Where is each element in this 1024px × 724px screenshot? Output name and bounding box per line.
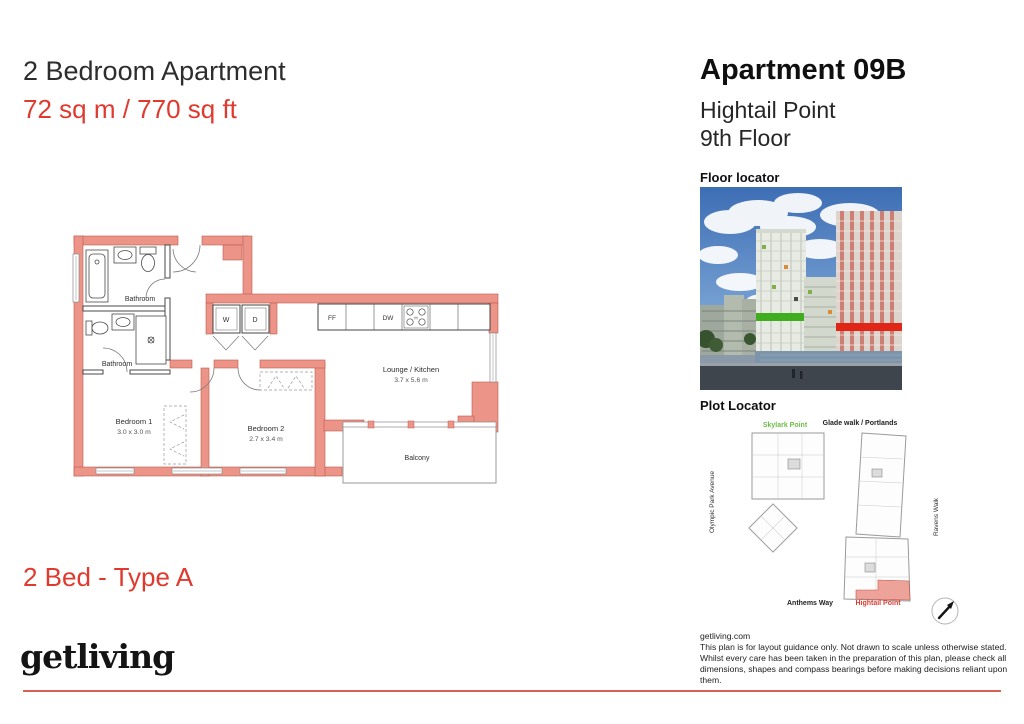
bathroom2-label: Bathroom: [102, 361, 133, 368]
bedroom1-dims: 3.0 x 3.0 m: [117, 429, 151, 436]
page-title: 2 Bedroom Apartment: [23, 56, 286, 87]
disclaimer-text: This plan is for layout guidance only. N…: [700, 642, 1014, 686]
website-url: getliving.com: [700, 631, 1014, 642]
wardrobes: [164, 372, 312, 464]
bedroom1-label: Bedroom 1: [116, 417, 153, 426]
bedroom2-dims: 2.7 x 3.4 m: [249, 436, 283, 443]
floor-locator-photo: [700, 187, 902, 390]
lounge-label: Lounge / Kitchen: [383, 365, 439, 374]
anthems-way-label: Anthems Way: [787, 600, 833, 607]
compass-icon: [932, 598, 958, 624]
building-name: Hightail Point: [700, 96, 836, 124]
washer-dryer-closet: W D: [213, 305, 269, 350]
disclaimer-block: getliving.com This plan is for layout gu…: [700, 631, 1014, 686]
skylark-label: Skylark Point: [763, 422, 808, 429]
bedroom2-label: Bedroom 2: [248, 424, 285, 433]
plan-type-label: 2 Bed - Type A: [23, 562, 193, 593]
photo-red-floor-highlight: [836, 323, 902, 331]
getliving-logo: getliving: [20, 637, 174, 676]
ravens-walk-label: Ravens Walk: [933, 497, 940, 536]
dryer-label: D: [252, 317, 257, 324]
bathroom1-fixtures: [86, 247, 156, 302]
lounge-dims: 3.7 x 5.6 m: [394, 377, 428, 384]
floor-number: 9th Floor: [700, 124, 836, 152]
photo-center-tower: [756, 229, 806, 353]
balcony-label: Balcony: [405, 455, 430, 462]
floor-plan-drawing: W D FF DW H Bathroom: [60, 220, 520, 510]
glade-walk-label: Glade walk / Portlands: [823, 420, 898, 427]
bathroom1-label: Bathroom: [125, 296, 156, 303]
bathroom2-fixtures: [86, 314, 166, 364]
photo-right-tower: [836, 211, 902, 361]
hob-label: H: [414, 316, 417, 321]
balcony-outline: [343, 421, 496, 483]
skylark-building: [749, 433, 824, 552]
washer-label: W: [223, 317, 230, 324]
fridge-label: FF: [328, 315, 336, 322]
dishwasher-label: DW: [383, 315, 395, 322]
footer-rule: [23, 690, 1001, 692]
floor-locator-heading: Floor locator: [700, 170, 779, 185]
apartment-area: 72 sq m / 770 sq ft: [23, 94, 237, 125]
photo-green-floor-highlight: [756, 313, 806, 321]
olympic-park-avenue-label: Olympic Park Avenue: [709, 471, 716, 533]
plot-locator-diagram: Skylark Point Glade walk / Portlands Oly…: [700, 417, 975, 629]
plot-locator-heading: Plot Locator: [700, 398, 776, 413]
hightail-point-label: Hightail Point: [855, 600, 901, 607]
portlands-building: [856, 433, 906, 537]
kitchen-counter: FF DW H: [318, 304, 490, 330]
apartment-number: Apartment 09B: [700, 54, 906, 87]
